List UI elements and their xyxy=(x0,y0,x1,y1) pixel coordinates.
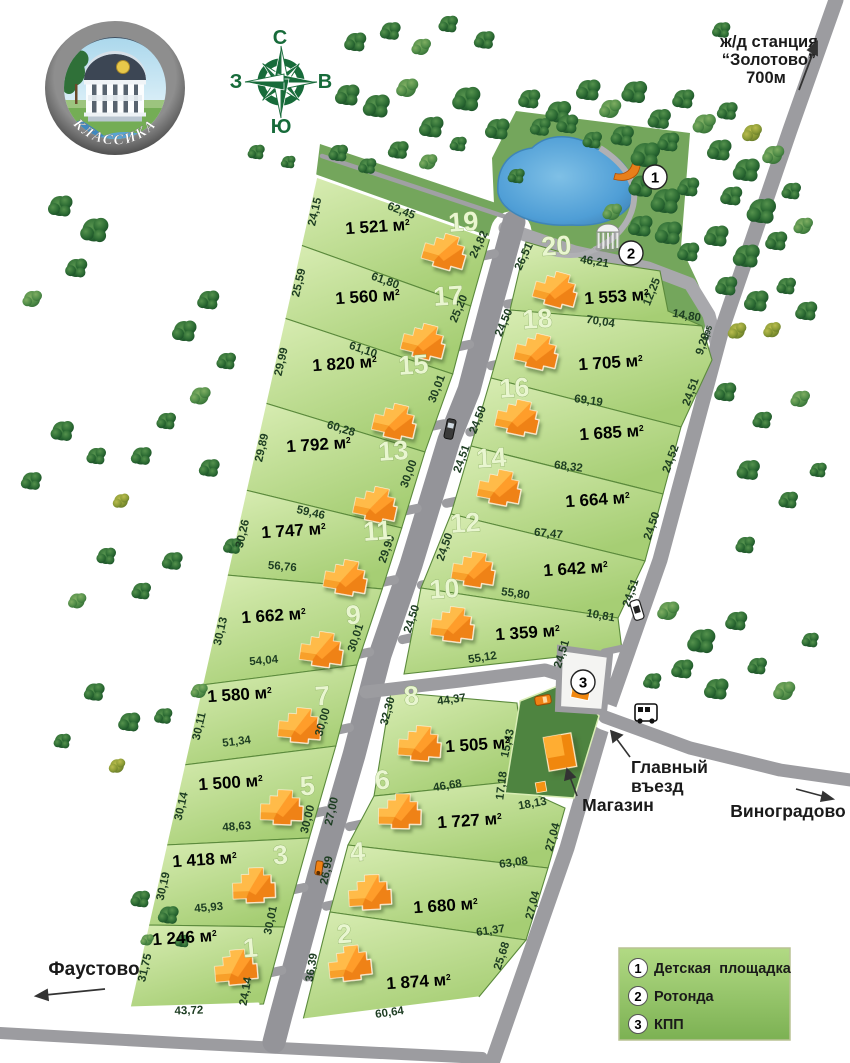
svg-text:2: 2 xyxy=(336,919,353,950)
svg-text:ж/д станция: ж/д станция xyxy=(719,33,818,51)
svg-text:1: 1 xyxy=(634,961,641,976)
svg-text:3: 3 xyxy=(272,840,289,871)
svg-text:въезд: въезд xyxy=(631,776,684,796)
svg-text:48,63: 48,63 xyxy=(222,820,252,834)
svg-text:700м: 700м xyxy=(746,69,786,87)
svg-text:2: 2 xyxy=(634,989,641,1004)
svg-text:8: 8 xyxy=(403,681,420,712)
svg-text:18: 18 xyxy=(521,303,553,335)
svg-text:КПП: КПП xyxy=(654,1017,684,1033)
svg-text:43,72: 43,72 xyxy=(174,1005,203,1018)
svg-text:45,93: 45,93 xyxy=(194,901,224,915)
svg-text:Детская площадка: Детская площадка xyxy=(654,961,792,977)
svg-text:20: 20 xyxy=(540,230,572,262)
svg-text:“Золотово”: “Золотово” xyxy=(722,51,816,69)
svg-text:Фаустово: Фаустово xyxy=(48,959,139,980)
svg-text:С: С xyxy=(273,27,287,49)
svg-text:6: 6 xyxy=(374,765,391,796)
svg-text:13: 13 xyxy=(377,435,409,467)
svg-text:5: 5 xyxy=(299,771,316,802)
svg-text:4: 4 xyxy=(349,837,366,868)
svg-text:14: 14 xyxy=(475,442,507,474)
svg-text:19: 19 xyxy=(447,206,479,238)
svg-text:3: 3 xyxy=(579,675,587,692)
svg-text:1: 1 xyxy=(651,170,659,187)
svg-text:Ю: Ю xyxy=(271,116,292,138)
svg-text:11: 11 xyxy=(362,515,393,547)
svg-text:З: З xyxy=(230,71,243,93)
svg-text:В: В xyxy=(318,71,332,93)
svg-text:17: 17 xyxy=(432,280,464,312)
svg-text:15: 15 xyxy=(397,349,429,381)
svg-text:2: 2 xyxy=(627,246,635,263)
svg-text:9: 9 xyxy=(345,600,362,631)
svg-text:Ротонда: Ротонда xyxy=(654,989,715,1005)
svg-text:12: 12 xyxy=(449,507,481,539)
svg-text:1: 1 xyxy=(242,933,259,964)
svg-text:10: 10 xyxy=(428,573,460,605)
svg-text:56,76: 56,76 xyxy=(267,560,297,574)
svg-text:Виноградово: Виноградово xyxy=(730,801,845,821)
svg-text:Главный: Главный xyxy=(631,757,708,777)
svg-text:Магазин: Магазин xyxy=(582,795,654,815)
svg-text:16: 16 xyxy=(498,372,530,404)
svg-text:7: 7 xyxy=(314,681,331,712)
svg-text:54,04: 54,04 xyxy=(249,654,279,669)
svg-text:3: 3 xyxy=(634,1017,641,1032)
